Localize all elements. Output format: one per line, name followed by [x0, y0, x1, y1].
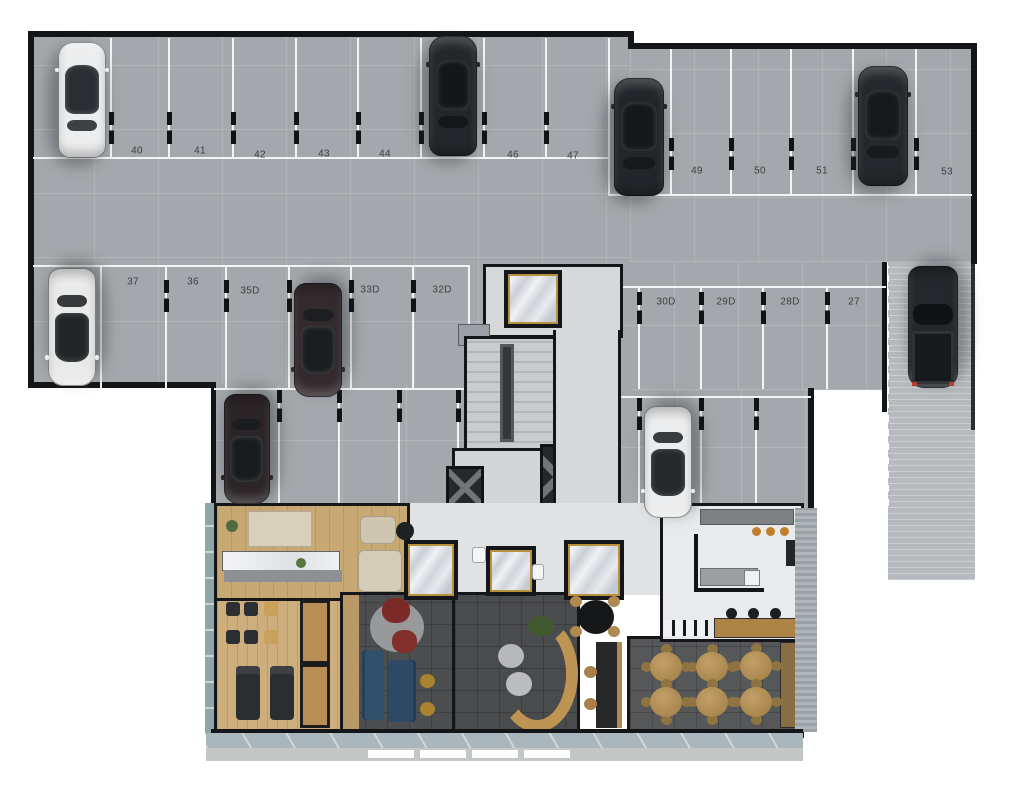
- wheel-stop-marker: [729, 138, 734, 170]
- stall-label-28D: 28D: [780, 297, 799, 308]
- wheel-stop-marker: [825, 292, 830, 324]
- stall-label-53: 53: [941, 167, 953, 178]
- wall-right: [971, 43, 977, 264]
- wc-fixture: [532, 564, 544, 580]
- car-space-52: [856, 66, 910, 186]
- stall-label-32D: 32D: [432, 285, 451, 296]
- wheel-stop-marker: [789, 138, 794, 170]
- truck-cab-glass: [913, 304, 953, 325]
- kitchen-inner-wall-h: [694, 588, 764, 592]
- wheel-stop-marker: [167, 112, 172, 144]
- truck-bed: [912, 331, 954, 385]
- car-space-45: [427, 36, 479, 156]
- pavement-marking: [472, 750, 518, 758]
- garden-bench: [300, 664, 330, 728]
- stall-label-37: 37: [127, 277, 139, 288]
- car-glass-roof: [301, 326, 335, 374]
- wheel-stop-marker: [754, 398, 759, 430]
- cafe-chair: [226, 602, 240, 616]
- wheel-stop-marker: [544, 112, 549, 144]
- bar-stool-black: [726, 608, 737, 619]
- lounge-wood-strip: [343, 595, 359, 729]
- stall-label-50: 50: [754, 166, 766, 177]
- orange-stool: [780, 527, 789, 536]
- stall-label-46: 46: [507, 150, 519, 161]
- car-space-34D: [292, 283, 344, 397]
- garage-floor-middle-right: [610, 262, 886, 390]
- car-glass-roof: [436, 60, 470, 110]
- side-table: [396, 522, 414, 540]
- sofa: [388, 660, 416, 722]
- car-rear-window: [303, 309, 333, 320]
- dining-table: [650, 687, 682, 717]
- kitchen-inner-wall-v: [694, 534, 698, 592]
- wc-fixture: [472, 547, 486, 563]
- wheel-stop-marker: [224, 280, 229, 312]
- stall-label-49: 49: [691, 166, 703, 177]
- wheel-stop-marker: [294, 112, 299, 144]
- wall-left: [28, 31, 34, 388]
- armchair: [360, 516, 396, 544]
- stall-label-27: 27: [848, 297, 860, 308]
- bar-stool-black: [770, 608, 781, 619]
- stall-line: [790, 49, 792, 194]
- orange-stool: [752, 527, 761, 536]
- red-pouf: [382, 598, 410, 623]
- chair: [608, 596, 620, 607]
- stall-label-47: 47: [567, 151, 579, 162]
- wall-top-right: [628, 43, 977, 49]
- car-rear-window: [233, 419, 262, 430]
- stall-line: [33, 265, 470, 267]
- stall-line: [915, 49, 917, 194]
- dining-chair: [771, 661, 782, 671]
- stall-label-41: 41: [194, 146, 206, 157]
- car-space-ramp: [906, 266, 960, 388]
- stool: [584, 666, 597, 678]
- wall-lower-right-vertical: [808, 388, 814, 515]
- wheel-stop-marker: [761, 292, 766, 324]
- lobby-elevator-shaft: [486, 546, 536, 596]
- elevator-cab: [504, 270, 562, 328]
- chair: [570, 596, 582, 607]
- kitchen-top-counter: [700, 509, 794, 525]
- wheel-stop-marker: [356, 112, 361, 144]
- car-mirror: [55, 68, 59, 73]
- glass-canopy: [206, 733, 803, 748]
- pavement-marking: [368, 750, 414, 758]
- wheel-stop-marker: [231, 112, 236, 144]
- stairwell-center-rail: [500, 344, 514, 442]
- stall-label-33D: 33D: [360, 285, 379, 296]
- bar-counter-wood: [714, 618, 796, 638]
- wall-left-lower-garage: [211, 382, 216, 508]
- dining-table: [696, 687, 728, 717]
- car-space-39: [56, 42, 108, 158]
- dining-side-counter: [780, 642, 796, 728]
- car-glass-roof: [65, 65, 99, 114]
- kitchen-sink: [744, 570, 760, 586]
- car-mirror: [221, 475, 225, 479]
- truck-taillight: [912, 382, 917, 386]
- stall-label-29D: 29D: [716, 297, 735, 308]
- cafe-chair: [226, 630, 240, 644]
- car-rear-window: [653, 432, 683, 443]
- bar-stool-black: [748, 608, 759, 619]
- side-service-strip: [795, 508, 817, 732]
- armchair: [358, 550, 402, 592]
- wheel-stop-marker: [482, 112, 487, 144]
- wheel-stop-marker: [699, 292, 704, 324]
- stall-line: [670, 49, 672, 194]
- stall-line: [613, 396, 811, 398]
- car-mirror: [907, 92, 911, 97]
- wheel-stop-marker: [109, 112, 114, 144]
- dining-chair: [771, 697, 782, 707]
- chair: [570, 626, 582, 637]
- wheel-stop-marker: [637, 292, 642, 324]
- car-glass-roof: [621, 102, 657, 152]
- round-coffee-table: [506, 672, 532, 696]
- stall-label-40: 40: [131, 146, 143, 157]
- car-rear-window: [438, 116, 468, 128]
- lobby-elevator-shaft: [404, 540, 458, 600]
- ramp-right-wall: [971, 262, 975, 430]
- car-rear-window: [67, 120, 97, 132]
- reception-desk: [596, 642, 622, 728]
- car-rear-window: [867, 146, 898, 158]
- orange-stool: [766, 527, 775, 536]
- cafe-table: [264, 602, 278, 616]
- car-mirror: [45, 355, 49, 360]
- lobby-glass-wall-left: [205, 503, 214, 735]
- sofa: [362, 650, 384, 720]
- wheel-stop-marker: [914, 138, 919, 170]
- round-coffee-table: [498, 644, 524, 668]
- car-mirror: [269, 475, 273, 479]
- car-space-38: [46, 268, 98, 386]
- wheel-stop-marker: [164, 280, 169, 312]
- stall-label-42: 42: [254, 150, 266, 161]
- wheel-stop-marker: [411, 280, 416, 312]
- garden-bench: [300, 600, 330, 664]
- car-mirror: [291, 367, 295, 372]
- service-hatch: [664, 620, 708, 636]
- stall-label-35D: 35D: [240, 286, 259, 297]
- ramp-left-wall: [882, 262, 887, 412]
- car-glass-roof: [231, 436, 264, 482]
- lobby-elevator-shaft: [564, 540, 624, 600]
- stall-label-30D: 30D: [656, 297, 675, 308]
- cafe-table: [264, 630, 278, 644]
- dining-bench-table: [248, 511, 312, 547]
- car-glass-roof: [55, 313, 89, 363]
- car-space-35D-lower: [222, 394, 272, 504]
- plant: [226, 520, 238, 532]
- car-space-30D-lower: [642, 406, 694, 518]
- truck-taillight: [949, 382, 954, 386]
- stool: [584, 698, 597, 710]
- dining-table: [740, 687, 772, 717]
- wheel-stop-marker: [456, 390, 461, 422]
- stall-label-43: 43: [318, 149, 330, 160]
- sunbed: [236, 666, 260, 720]
- gold-side-table: [420, 674, 435, 688]
- gold-side-table: [420, 702, 435, 716]
- core-corridor: [553, 330, 621, 508]
- car-mirror: [341, 367, 345, 372]
- pavement-marking: [524, 750, 570, 758]
- counter-base: [224, 570, 342, 582]
- cafe-chair: [244, 630, 258, 644]
- car-rear-window: [623, 157, 654, 169]
- chair: [608, 626, 620, 637]
- stall-label-44: 44: [379, 149, 391, 160]
- car-glass-roof: [651, 449, 685, 496]
- dining-table: [650, 652, 682, 682]
- wheel-stop-marker: [669, 138, 674, 170]
- car-mirror: [105, 68, 109, 73]
- floor-plan: 39404142434445464748495051525338373635D3…: [0, 0, 1024, 803]
- sunbed: [270, 666, 294, 720]
- stall-label-51: 51: [816, 166, 828, 177]
- dining-table: [740, 651, 772, 681]
- stall-line: [730, 49, 732, 194]
- red-pouf: [392, 630, 417, 653]
- car-space-48: [612, 78, 666, 196]
- car-glass-roof: [865, 90, 901, 140]
- car-mirror: [95, 355, 99, 360]
- car-mirror: [663, 104, 667, 109]
- pavement-marking: [420, 750, 466, 758]
- garage-floor-upper-right: [630, 47, 974, 262]
- wall-top-left: [28, 31, 632, 37]
- car-mirror: [476, 62, 480, 67]
- wheel-stop-marker: [397, 390, 402, 422]
- cafe-chair: [244, 602, 258, 616]
- car-mirror: [611, 104, 615, 109]
- stall-label-36: 36: [187, 277, 199, 288]
- car-rear-window: [57, 295, 87, 307]
- plant: [528, 616, 554, 636]
- marble-counter: [222, 551, 340, 571]
- dining-table: [696, 652, 728, 682]
- stall-line: [586, 286, 886, 288]
- plant: [296, 558, 306, 568]
